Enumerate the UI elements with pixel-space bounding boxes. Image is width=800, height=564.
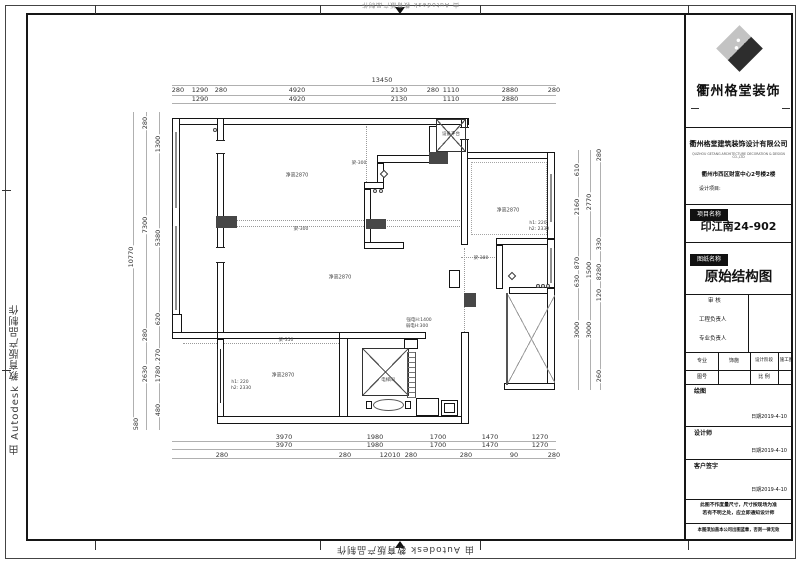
wall-segment [504, 383, 555, 390]
scale-label: 比 例 [750, 375, 778, 380]
company-address: 衢州市西区财富中心2号楼2楼 [686, 173, 791, 179]
wall-segment [364, 182, 384, 189]
dimension-label: 280 [596, 148, 603, 162]
dimension-label: 3000 [586, 321, 593, 340]
plan-label: 设备平台 [442, 133, 460, 138]
divider [686, 294, 791, 295]
frame-tick [688, 541, 689, 550]
dimension-label: 1270 [532, 442, 549, 449]
window [217, 349, 224, 403]
dimension-label: 1980 [367, 434, 384, 441]
dimension-label: 280 [339, 452, 351, 459]
discipline-label: 专业 [686, 359, 718, 364]
dimension-label: 2880 [502, 87, 519, 94]
dimension-label: 1300 [155, 135, 162, 154]
dimension-label: 610 [574, 163, 581, 177]
note-line2: 若有不明之处，应立即通知设计师 [686, 512, 791, 517]
plan-label: h1: 220 [231, 381, 248, 386]
design-project-label: 设计项目: [699, 187, 721, 192]
column [216, 216, 237, 228]
divider [686, 459, 791, 460]
wall-segment [377, 155, 437, 163]
dimension-label: 2130 [391, 87, 408, 94]
dimension-label: 2630 [142, 365, 149, 384]
pipe-symbol [536, 284, 540, 288]
divider [686, 127, 791, 128]
dimension-label: 480 [155, 403, 162, 417]
dimension-label: 1290 [192, 87, 209, 94]
dimension-label: 1500 [586, 261, 593, 280]
dimension-label: 2770 [586, 193, 593, 212]
drain-symbol [213, 128, 217, 132]
dimension-label: 280 [548, 452, 560, 459]
fixture [405, 401, 411, 409]
logo-mark [782, 108, 790, 109]
company-name: 衢州格堂建筑装饰设计有限公司 [686, 141, 791, 148]
drawing-sheet: 由 Autodesk 教育版产品制作 由 Autodesk 教育版产品制作 由 … [0, 0, 800, 564]
plan-label: h2: 2330 [529, 228, 549, 233]
dim-line [172, 85, 556, 86]
dimension-label: 1700 [430, 442, 447, 449]
dimension-label: 870 [574, 256, 581, 270]
designer-date: 日期2019-4-10 [751, 449, 787, 454]
dimension-label: 1980 [367, 442, 384, 449]
dimension-label: 280 [405, 452, 417, 459]
divider [718, 352, 719, 384]
note-stamp: 本图须加盖本公司出图蓝章，否则一律无效 [686, 529, 791, 533]
column [429, 152, 448, 164]
plan-label: 梁-350 [279, 339, 294, 344]
wall-segment [339, 332, 426, 339]
discipline-manager-label: 专业负责人 [699, 337, 727, 343]
beam-line [183, 343, 341, 344]
divider [686, 426, 791, 427]
dimension-label: 8280 [596, 263, 603, 282]
divider [778, 352, 779, 384]
dim-line [172, 458, 556, 459]
plan-label: 梁-300 [294, 228, 309, 233]
project-manager-label: 工程负责人 [699, 318, 727, 324]
dimension-label: 620 [155, 312, 162, 326]
plan-label: h1: 220 [529, 222, 546, 227]
designer-label: 设计师 [694, 431, 712, 437]
divider [686, 384, 791, 385]
dimension-label: 1270 [532, 434, 549, 441]
beam-line [220, 226, 462, 227]
dimension-label: 12010 [380, 452, 401, 459]
stage-label: 设计阶段 [750, 359, 778, 364]
divider [748, 294, 749, 352]
window [172, 132, 180, 208]
wall-segment [339, 332, 348, 424]
dimension-label: 280 [215, 87, 227, 94]
dim-line [133, 112, 134, 430]
dimension-label: 4920 [289, 96, 306, 103]
fixture [373, 399, 404, 411]
beam-line [220, 220, 462, 221]
dimension-label: 1110 [443, 96, 460, 103]
dimension-label: 280 [216, 452, 228, 459]
dim-line [172, 449, 556, 450]
floor-plan: 1345028012902804920213028011102880280129… [0, 0, 684, 564]
dimension-label: 280 [460, 452, 472, 459]
divider [686, 523, 791, 524]
dim-line [172, 441, 556, 442]
dimension-label: 120 [596, 288, 603, 302]
dimension-label: 13450 [372, 77, 393, 84]
dimension-label: 630 [574, 274, 581, 288]
plan-label: 强电H:1400 [406, 319, 431, 324]
beam-line [464, 248, 465, 332]
window [547, 174, 555, 222]
company-name-en: QUZHOU GETANG ARCHITECTURE DECORATION & … [686, 153, 791, 159]
dimension-label: 2160 [574, 198, 581, 217]
dimension-label: 1470 [482, 434, 499, 441]
divider [686, 370, 791, 371]
dimension-label: 280 [142, 116, 149, 130]
dimension-label: 330 [596, 237, 603, 251]
meter-box-inner [444, 403, 455, 413]
dimension-label: 1110 [443, 87, 460, 94]
elevator-shaft [362, 348, 409, 396]
company-logo-icon [716, 25, 763, 72]
dimension-label: 3970 [276, 442, 293, 449]
door-symbol [508, 272, 516, 280]
wall-segment [496, 245, 503, 289]
plan-label: 弱电H:300 [406, 325, 429, 330]
draw-date: 日期2019-4-10 [751, 415, 787, 420]
column [366, 219, 386, 229]
plan-label: 净高2870 [497, 209, 520, 214]
wall-segment [364, 242, 404, 249]
dimension-label: 7300 [142, 216, 149, 235]
project-name: 印江南24-902 [686, 221, 791, 232]
note-line1: 此图不作度量尺寸，尺寸按现场为准 [686, 504, 791, 509]
dimension-label: 90 [510, 452, 518, 459]
dim-line [172, 95, 556, 96]
plan-label: h2: 2330 [231, 387, 251, 392]
window [216, 140, 225, 154]
title-block: 衢州格堂装饰 衢州格堂建筑装饰设计有限公司 QUZHOU GETANG ARCH… [684, 13, 793, 541]
plan-label: 净高2870 [272, 374, 295, 379]
draw-label: 绘图 [694, 389, 706, 395]
dimension-label: 2130 [391, 96, 408, 103]
plan-label: 净高2870 [329, 276, 352, 281]
dimension-label: 4920 [289, 87, 306, 94]
discipline-value: 饰施 [718, 359, 750, 364]
wall-segment [461, 152, 555, 159]
dimension-label: 3970 [276, 434, 293, 441]
brand-name: 衢州格堂装饰 [686, 85, 791, 98]
column [464, 293, 476, 307]
window [547, 248, 555, 283]
meter-box [416, 398, 439, 416]
drawing-name: 原始结构图 [686, 271, 791, 285]
stage-value: 施工图 [778, 359, 795, 364]
dimension-label: 2880 [502, 96, 519, 103]
wall-segment [461, 332, 469, 424]
drawing-name-label: 图纸名称 [690, 254, 728, 266]
dimension-label: 280 [142, 328, 149, 342]
divider [686, 204, 791, 205]
window [172, 226, 180, 310]
divider [686, 352, 791, 353]
window [216, 247, 225, 263]
dimension-label: 1290 [192, 96, 209, 103]
pipe-symbol [379, 189, 383, 193]
dimension-label: 3000 [574, 321, 581, 340]
dimension-label: 5380 [155, 229, 162, 248]
client-signature-label: 客户签字 [694, 464, 718, 470]
review-label: 审 核 [708, 299, 721, 305]
fixture [366, 401, 372, 409]
dimension-label: 1470 [482, 442, 499, 449]
client-date: 日期2019-4-10 [751, 488, 787, 493]
plan-label: 梁-380 [474, 257, 489, 262]
dimension-label: 580 [133, 417, 140, 431]
dimension-label: 1780 [155, 365, 162, 384]
pipe-symbol [373, 189, 377, 193]
plan-label: 净高2870 [286, 174, 309, 179]
divider [686, 242, 791, 243]
dimension-label: 270 [155, 348, 162, 362]
wall-segment [449, 270, 460, 288]
dimension-label: 280 [548, 87, 560, 94]
figure-number-label: 图号 [686, 375, 718, 380]
staircase [508, 295, 555, 383]
wall-segment [217, 416, 469, 424]
dimension-label: 1700 [430, 434, 447, 441]
pipe-symbol [546, 284, 550, 288]
wall-segment [496, 238, 554, 245]
dimension-label: 280 [427, 87, 439, 94]
logo-mark [691, 108, 699, 109]
dimension-label: 260 [596, 369, 603, 383]
divider [686, 499, 791, 500]
elevator-door [407, 352, 416, 398]
plan-label: 电梯间 [381, 379, 395, 384]
pipe-symbol [541, 284, 545, 288]
dimension-label: 10770 [128, 246, 135, 269]
plan-label: 梁-300 [352, 162, 367, 167]
dim-line [172, 103, 556, 104]
dimension-label: 280 [172, 87, 184, 94]
